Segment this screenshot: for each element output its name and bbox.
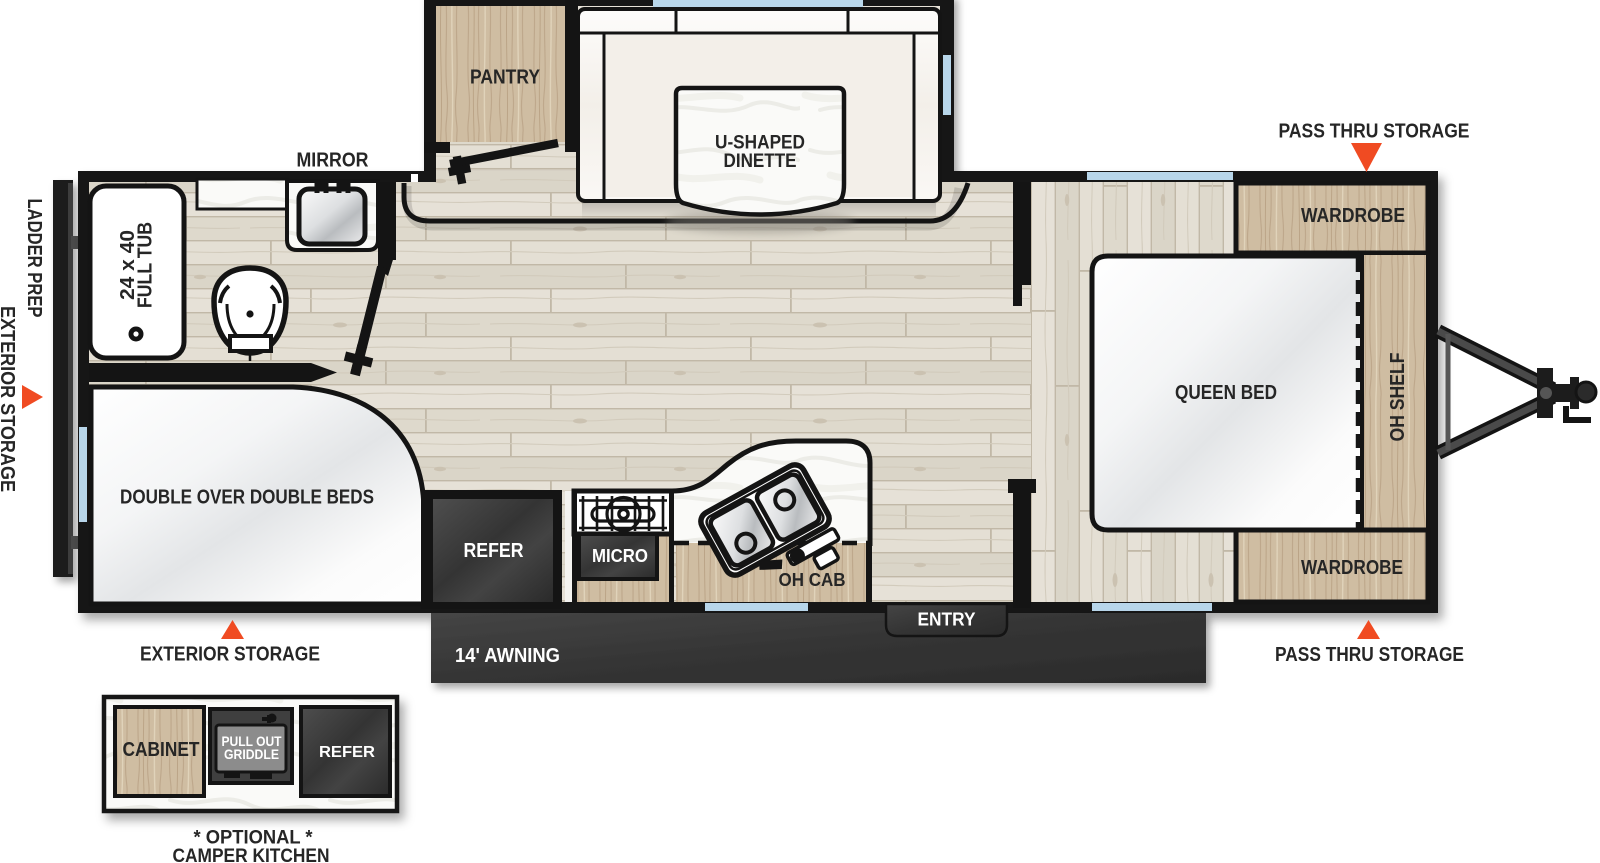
svg-text:MICRO: MICRO <box>592 546 648 566</box>
svg-text:CAMPER KITCHEN: CAMPER KITCHEN <box>173 845 330 863</box>
svg-text:EXTERIOR STORAGE: EXTERIOR STORAGE <box>0 306 18 492</box>
svg-text:PANTRY: PANTRY <box>470 67 541 89</box>
svg-text:14' AWNING: 14' AWNING <box>455 645 560 667</box>
svg-text:DINETTE: DINETTE <box>724 151 797 172</box>
svg-text:REFER: REFER <box>319 744 375 761</box>
svg-text:OH CAB: OH CAB <box>779 569 846 590</box>
svg-text:DOUBLE OVER DOUBLE BEDS: DOUBLE OVER DOUBLE BEDS <box>120 487 374 509</box>
svg-text:MIRROR: MIRROR <box>297 150 369 172</box>
svg-text:PASS THRU STORAGE: PASS THRU STORAGE <box>1279 120 1470 143</box>
svg-text:ENTRY: ENTRY <box>918 609 977 630</box>
svg-text:GRIDDLE: GRIDDLE <box>224 746 279 762</box>
svg-text:LADDER PREP: LADDER PREP <box>23 199 45 318</box>
svg-text:PASS THRU STORAGE: PASS THRU STORAGE <box>1275 643 1464 666</box>
svg-text:EXTERIOR STORAGE: EXTERIOR STORAGE <box>140 643 320 666</box>
svg-text:WARDROBE: WARDROBE <box>1301 204 1405 227</box>
svg-text:FULL TUB: FULL TUB <box>135 222 157 308</box>
svg-text:QUEEN BED: QUEEN BED <box>1175 381 1277 404</box>
svg-text:WARDROBE: WARDROBE <box>1301 556 1403 579</box>
svg-text:OH SHELF: OH SHELF <box>1387 353 1409 442</box>
svg-text:CABINET: CABINET <box>123 739 200 761</box>
svg-text:REFER: REFER <box>464 540 524 562</box>
